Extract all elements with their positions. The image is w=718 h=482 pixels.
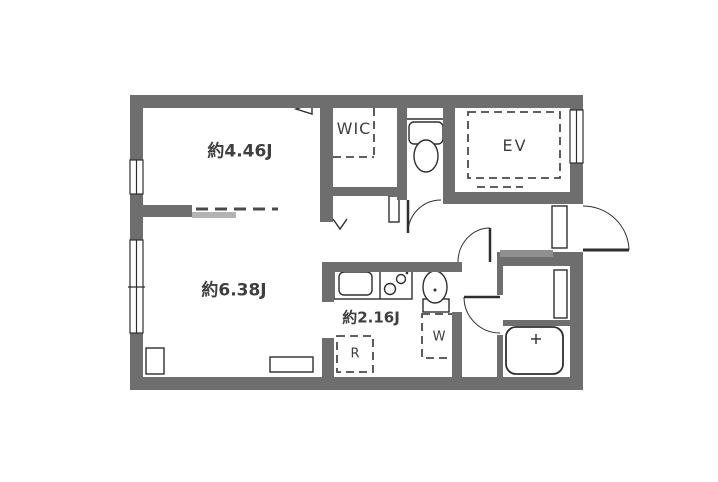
wall-toilet-ev: [443, 95, 455, 204]
washbasin-bowl: [423, 271, 447, 303]
bedroom-label: 約4.46J: [207, 144, 272, 161]
wall-kitchen-top: [322, 262, 462, 272]
wall-right-a: [570, 95, 583, 110]
wall-corridor-a: [497, 266, 503, 295]
wall-washroom-bath: [503, 320, 570, 326]
wall-room-partition: [143, 205, 192, 217]
elevator-label: EV: [502, 138, 527, 154]
wall-under-wic: [333, 187, 397, 196]
genkan-step: [500, 250, 553, 257]
wall-wic-toilet: [397, 108, 407, 200]
shoe-cabinet: [552, 206, 567, 248]
wall-below-ev: [443, 192, 583, 204]
toilet-door-arc: [408, 200, 441, 233]
stove-burner-2: [397, 275, 406, 284]
wall-top: [130, 95, 583, 108]
floor-plan: 約4.46J WIC EV 約6.38J 約2.16J W R: [0, 0, 718, 482]
wall-washer-nook: [452, 312, 462, 377]
kitchen-sink: [339, 272, 372, 295]
wall-living-kitchen-b: [322, 338, 334, 377]
washbasin-drain: [434, 289, 437, 292]
wall-bedroom-wic: [320, 108, 333, 222]
wall-left-c: [130, 333, 143, 390]
stove-burner-1: [385, 284, 396, 295]
bottom-pillar: [270, 357, 313, 372]
hall-door-arc: [458, 228, 490, 262]
stove-knob-dot: [406, 272, 409, 275]
washer-label: W: [433, 331, 446, 344]
bathtub: [506, 327, 563, 374]
sliding-door-panel: [192, 212, 236, 218]
corner-pillar: [146, 348, 164, 374]
living-label: 約6.38J: [201, 283, 266, 300]
washroom-shelf: [554, 270, 567, 318]
toilet-bowl: [414, 140, 438, 172]
wall-left-a: [130, 95, 143, 160]
floor-plan-drawing: [0, 0, 718, 482]
wall-corridor-b: [497, 335, 503, 377]
wall-bottom: [130, 377, 583, 390]
wall-left-b: [130, 194, 143, 240]
wic-label: WIC: [337, 121, 372, 137]
wall-right-c: [570, 252, 583, 390]
washroom-door-arc: [464, 297, 500, 333]
wall-living-kitchen-a: [322, 262, 334, 302]
kitchen-label: 約2.16J: [342, 311, 400, 326]
entrance-door-arc: [583, 206, 629, 250]
fridge-label: R: [350, 348, 359, 361]
folding-door-mark: [333, 219, 347, 229]
